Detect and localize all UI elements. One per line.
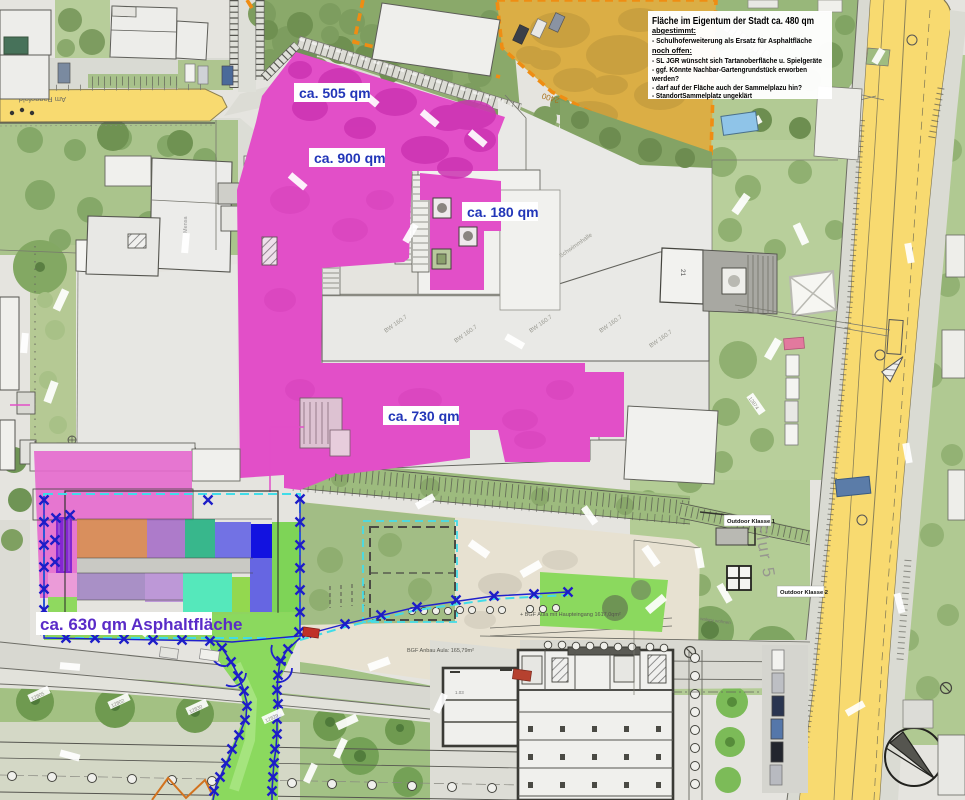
svg-text:1.03: 1.03 — [455, 690, 464, 695]
svg-text:- SL JGR wünscht sich Tartanob: - SL JGR wünscht sich Tartanoberfläche u… — [652, 56, 822, 65]
svg-text:+ BGF Aula mit Haupteingang 1: + BGF Aula mit Haupteingang 1617,0qm² — [520, 612, 621, 618]
svg-text:Mensa: Mensa — [183, 216, 189, 233]
svg-text:- Schulhoferweiterung als Ersa: - Schulhoferweiterung als Ersatz für Asp… — [652, 36, 812, 45]
svg-text:ca. 730 qm: ca. 730 qm — [388, 408, 460, 424]
svg-text:ca. 630 qm Asphaltfläche: ca. 630 qm Asphaltfläche — [40, 615, 243, 634]
svg-text:Outdoor Klasse 2: Outdoor Klasse 2 — [780, 590, 828, 596]
svg-text:abgestimmt:: abgestimmt: — [652, 26, 696, 35]
svg-text:ca. 180 qm: ca. 180 qm — [467, 204, 539, 220]
svg-text:Outdoor Klasse 1: Outdoor Klasse 1 — [727, 519, 776, 525]
svg-text:21: 21 — [679, 269, 686, 277]
svg-text:- ggf. Könnte Nachbar-Gartengr: - ggf. Könnte Nachbar-Gartengrundstück e… — [652, 65, 807, 74]
svg-text:ca. 900 qm: ca. 900 qm — [314, 150, 386, 166]
svg-text:werden?: werden? — [651, 74, 679, 83]
svg-text:ca. 505 qm: ca. 505 qm — [299, 85, 371, 101]
svg-text:- StandortSammelplatz ungeklär: - StandortSammelplatz ungeklärt — [652, 91, 752, 100]
svg-text:noch offen:: noch offen: — [652, 46, 692, 55]
svg-text:BGF Anbau Aula: 165,79m²: BGF Anbau Aula: 165,79m² — [407, 648, 474, 654]
